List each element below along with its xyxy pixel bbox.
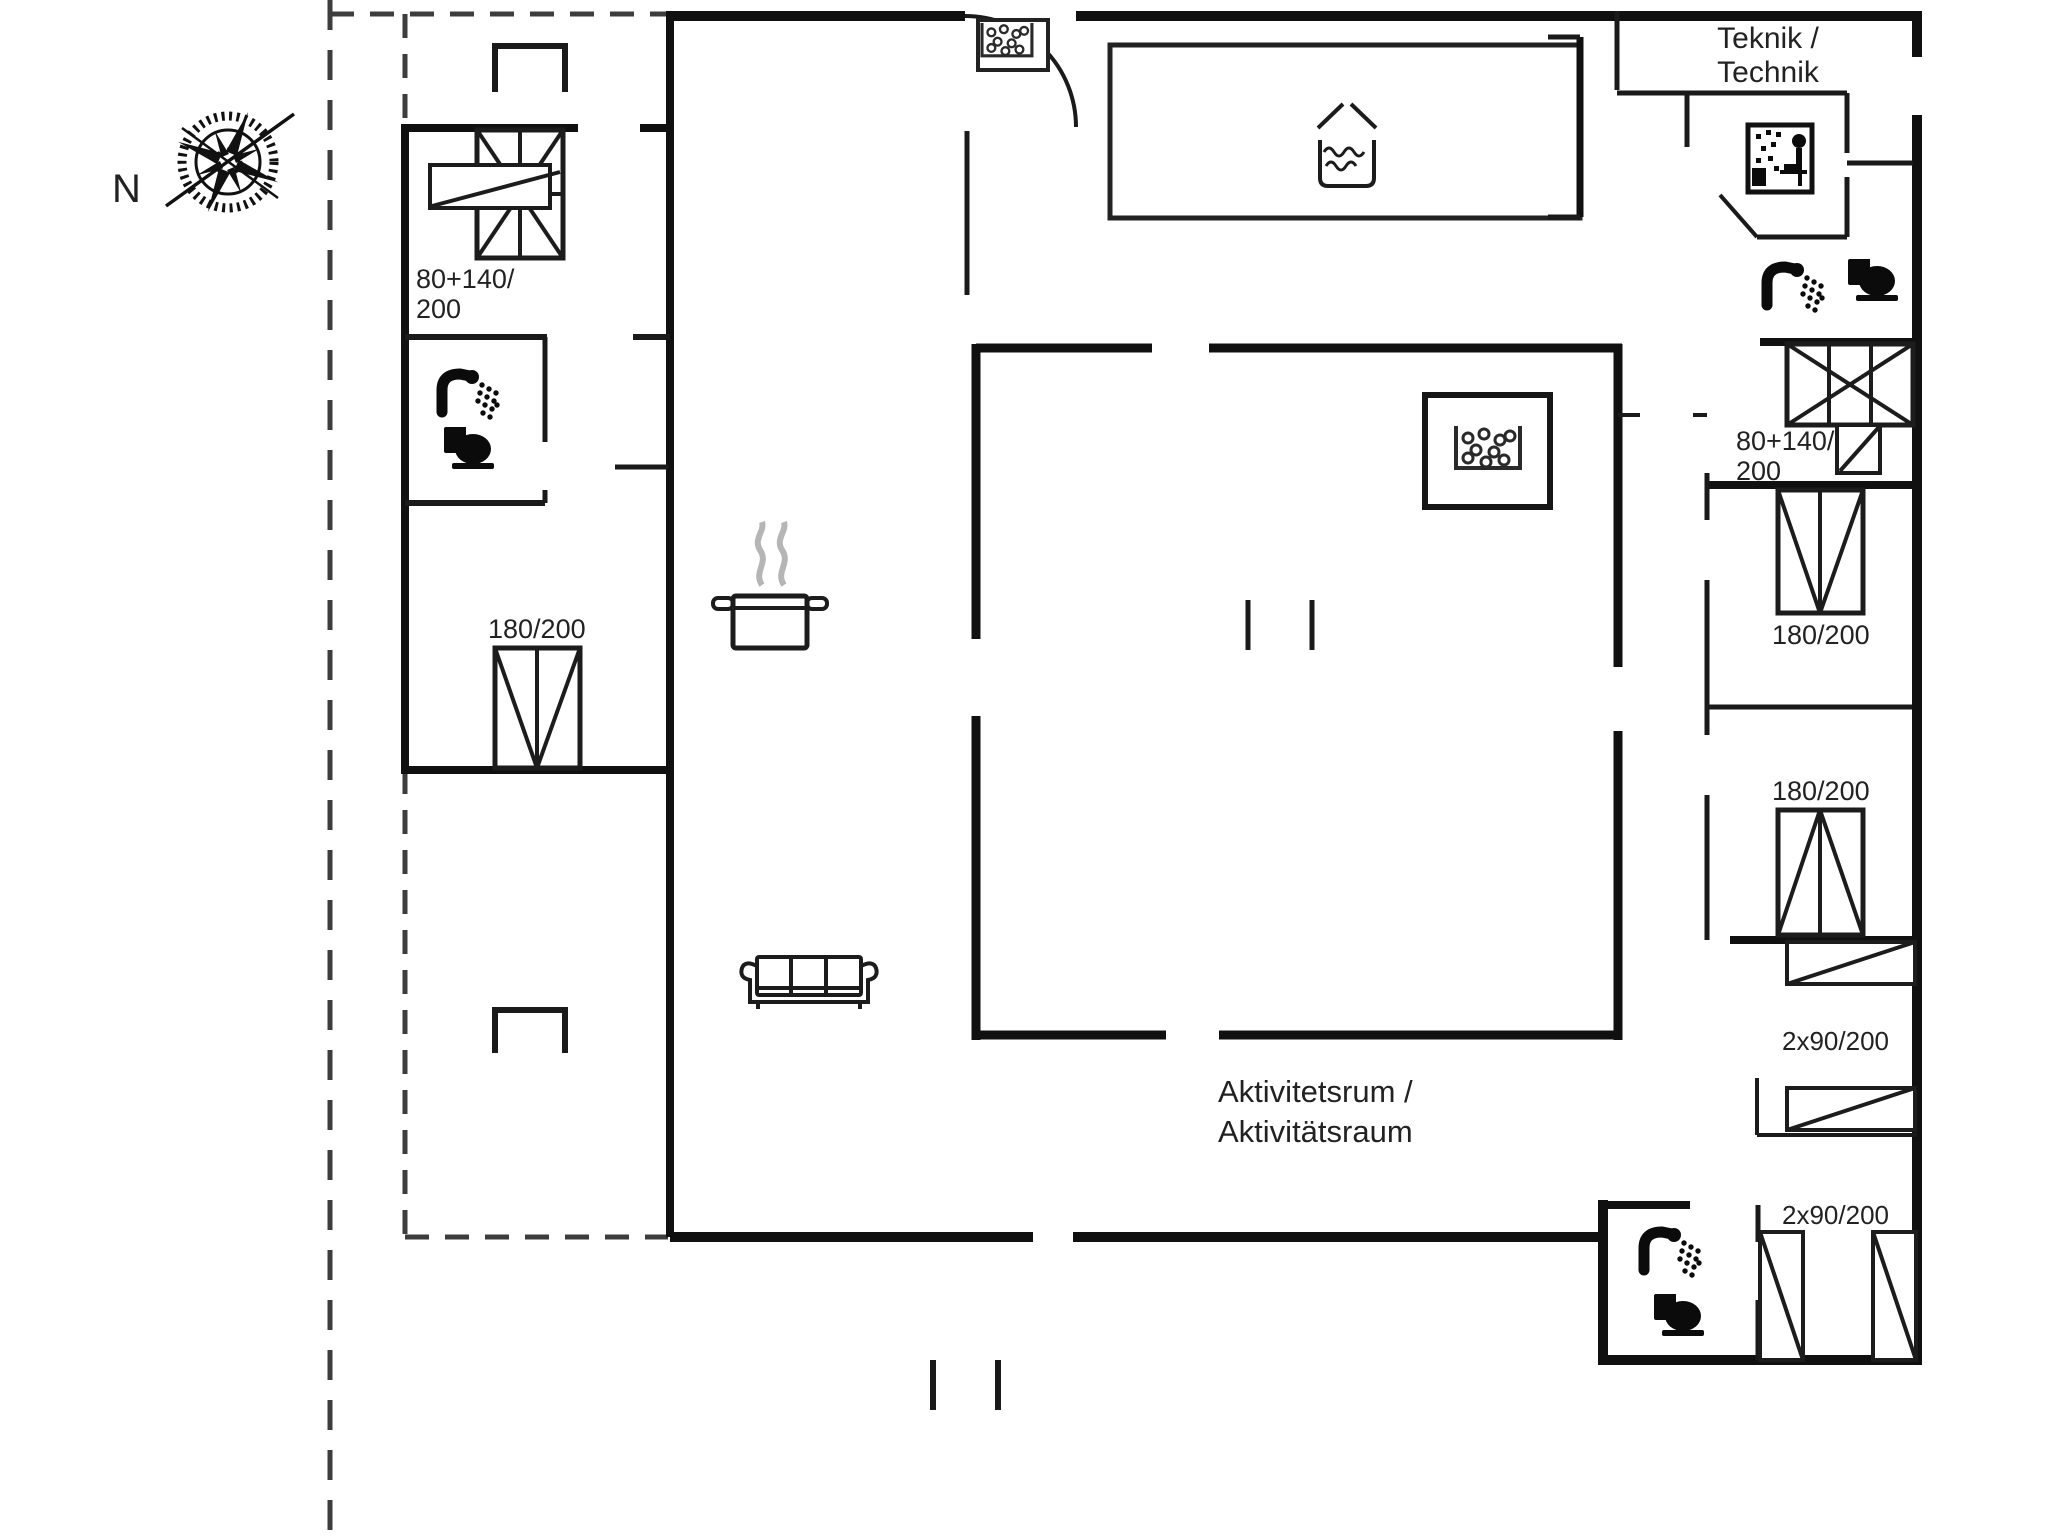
double-bed-right-upper: [1778, 490, 1863, 613]
carport-post-marker-top: [495, 46, 565, 92]
floor-plan-canvas: N: [0, 0, 2048, 1536]
bunk-top-right-size-line2: 200: [1736, 456, 1781, 486]
bunk-top-left-size-line2: 200: [416, 294, 461, 324]
double-bed-right-lower-size: 180/200: [1772, 776, 1870, 806]
bunk-top-right-size-line1: 80+140/: [1736, 426, 1835, 456]
teknik-label-line2: Technik: [1717, 56, 1820, 89]
toilet-icon: [1654, 1294, 1704, 1336]
whirlpool-icon: [1425, 395, 1550, 507]
toilet-icon: [1848, 259, 1898, 301]
pool-basin: [1110, 45, 1580, 218]
shower-icon: [442, 370, 500, 420]
cooking-pot-icon: [713, 522, 827, 648]
double-bed-left: [495, 648, 580, 768]
single-beds-bottom-size: 2x90/200: [1782, 1200, 1889, 1230]
double-bed-left-size: 180/200: [488, 614, 586, 644]
single-bed-middle-b: [1787, 1088, 1915, 1130]
single-beds-middle-size: 2x90/200: [1782, 1026, 1889, 1056]
shower-icon: [1767, 263, 1825, 313]
single-bed-middle-a: [1787, 942, 1915, 984]
bunk-bed-top-left: [430, 130, 563, 258]
double-bed-right-lower: [1778, 810, 1863, 935]
shower-icon: [1644, 1228, 1702, 1278]
teknik-label-line1: Teknik /: [1717, 22, 1819, 55]
sauna-icon: [1748, 125, 1812, 192]
mini-whirlpool-icon: [978, 20, 1048, 70]
double-bed-right-upper-size: 180/200: [1772, 620, 1870, 650]
floor-plan-svg: N: [0, 0, 2048, 1536]
entrance-door-marks: [933, 1360, 998, 1410]
single-bed-bottom-a: [1760, 1232, 1803, 1360]
bunk-top-left-size-line1: 80+140/: [416, 264, 515, 294]
activity-room-label-line2: Aktivitätsraum: [1218, 1114, 1413, 1149]
toilet-icon: [444, 427, 494, 469]
carport-post-marker-bottom: [495, 1010, 565, 1053]
activity-room-label-line1: Aktivitetsrum /: [1218, 1074, 1413, 1109]
sofa-icon: [741, 957, 876, 1009]
compass-icon: N: [112, 92, 298, 233]
compass-north-label: N: [112, 167, 141, 211]
single-bed-bottom-b: [1873, 1232, 1916, 1360]
